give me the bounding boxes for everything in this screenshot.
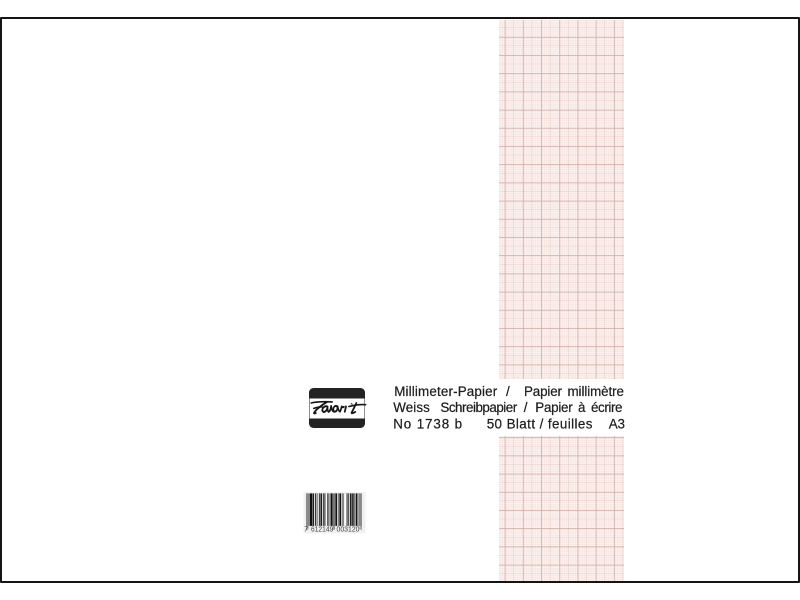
svg-text:écrire: écrire: [591, 400, 623, 415]
svg-text:Millimeter-Papier: Millimeter-Papier: [394, 384, 498, 399]
svg-text:50 Blatt / feuilles: 50 Blatt / feuilles: [487, 416, 593, 431]
svg-text:A3: A3: [609, 416, 625, 431]
svg-text:millimètre: millimètre: [568, 384, 625, 399]
svg-text:/: /: [506, 384, 510, 399]
svg-text:/: /: [524, 400, 528, 415]
svg-text:7: 7: [304, 526, 308, 533]
svg-text:612149: 612149: [311, 526, 333, 533]
svg-text:à: à: [578, 400, 586, 415]
svg-text:Papier: Papier: [535, 400, 573, 415]
svg-text:003120: 003120: [337, 526, 360, 533]
svg-text:Papier: Papier: [524, 384, 563, 399]
svg-text:No 1738 b: No 1738 b: [393, 416, 462, 431]
svg-text:Schreibpapier: Schreibpapier: [440, 400, 517, 415]
svg-text:Weiss: Weiss: [393, 400, 430, 415]
